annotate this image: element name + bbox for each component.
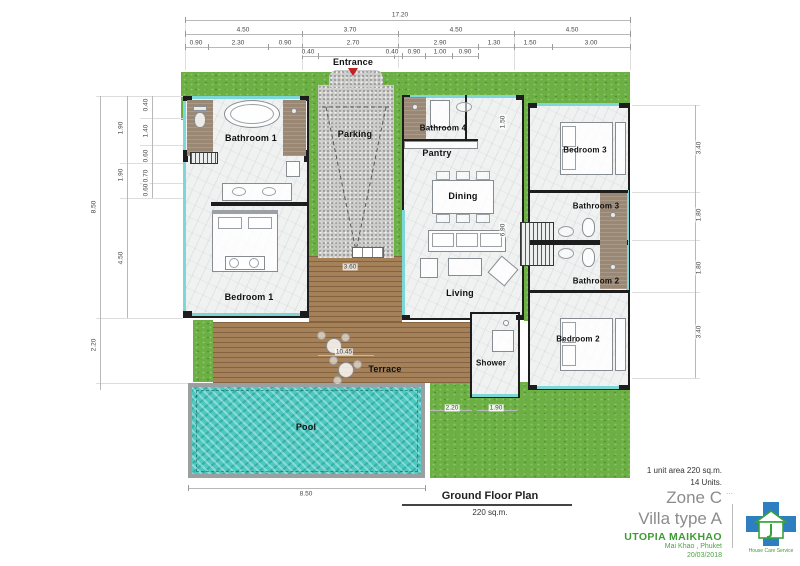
guide-line <box>96 318 183 319</box>
dim-left-inner: 0.60 <box>142 149 149 164</box>
room-label-terrace: Terrace <box>368 364 401 374</box>
glass-leftwing-top <box>186 96 306 99</box>
wall-seg <box>619 385 630 390</box>
dim-top2: 4.50 <box>565 26 580 33</box>
dim-tick <box>425 53 426 59</box>
guide-line <box>96 96 183 97</box>
guide-line <box>140 145 183 146</box>
bed1-headboard <box>212 210 278 214</box>
grass-sliver-left <box>309 72 318 262</box>
wall-seg <box>528 103 537 108</box>
villa-type-title: Villa type A <box>560 509 722 529</box>
plan-area: 220 sq.m. <box>410 508 570 517</box>
dim-line <box>127 96 128 318</box>
room-label-bathroom3: Bathroom 3 <box>573 202 619 211</box>
deck-chair <box>341 333 350 342</box>
dim-top3: 2.90 <box>433 39 448 46</box>
dim-tick <box>630 17 631 23</box>
zone-title: Zone C <box>560 488 722 508</box>
guide-line <box>632 192 700 193</box>
project-location: Mai Khao , Phuket <box>560 543 722 550</box>
wall-seg <box>619 103 630 108</box>
house-care-logo <box>746 502 796 546</box>
dim-line <box>100 96 101 390</box>
toilet-icon <box>582 248 595 267</box>
side-table <box>286 161 300 177</box>
room-label-bathroom1: Bathroom 1 <box>225 133 277 143</box>
guide-line <box>632 378 700 379</box>
room-label-parking: Parking <box>338 129 372 139</box>
dim-right: 1.80 <box>695 208 702 223</box>
parking-steps <box>352 247 384 258</box>
room-label-bedroom3: Bedroom 3 <box>563 146 607 155</box>
dim-left-inner: 0.70 <box>142 169 149 184</box>
dim-top2: 4.50 <box>449 26 464 33</box>
dim-top3: 0.90 <box>189 39 204 46</box>
project-date: 20/03/2018 <box>560 552 722 559</box>
dim-tick <box>630 31 631 37</box>
dim-right: 3.40 <box>695 141 702 156</box>
entrance-marker-icon <box>348 68 358 76</box>
dim-tick <box>318 53 319 59</box>
logo-caption: House Care Service <box>740 548 800 554</box>
room-label-shower: Shower <box>476 359 506 368</box>
dim-top4: 0.40 <box>385 48 400 55</box>
chair-icon <box>436 171 450 180</box>
dim-tick <box>552 44 553 50</box>
glass-shower-bottom <box>472 394 518 397</box>
dim-right: 1.80 <box>695 261 702 276</box>
room-label-bathroom2: Bathroom 2 <box>573 277 619 286</box>
grass-bottom-left <box>193 320 213 382</box>
armchair <box>420 258 438 278</box>
wall-seg <box>300 311 309 316</box>
dim-left-inner: 0.60 <box>142 183 149 198</box>
wall-seg <box>516 315 524 320</box>
dim-top3: 2.30 <box>231 39 246 46</box>
grass-sliver-mid <box>394 72 402 262</box>
dim-top4: 0.90 <box>407 48 422 55</box>
dim-top4: 1.00 <box>433 48 448 55</box>
bathtub-inner <box>230 104 274 124</box>
toilet-icon <box>194 112 206 128</box>
dim-tick <box>302 31 303 37</box>
pillow-icon <box>562 345 576 366</box>
wardrobe <box>615 122 626 175</box>
guide-line <box>120 198 183 199</box>
chair-icon <box>436 214 450 223</box>
dim-pool-width: 8.50 <box>299 490 314 497</box>
sink-icon <box>262 187 276 196</box>
shower-head-icon <box>610 212 616 218</box>
deck-chair <box>329 356 338 365</box>
room-label-bathroom4: Bathroom 4 <box>420 124 466 133</box>
toilet-icon <box>582 218 595 237</box>
dim-tick <box>398 31 399 37</box>
dim-inner-vertical: 6.90 <box>499 223 506 238</box>
glass-leftwing-bottom <box>186 313 306 316</box>
room-label-bedroom1: Bedroom 1 <box>225 292 274 302</box>
sink-icon <box>232 187 246 196</box>
sink-icon <box>456 102 472 112</box>
deck-chair <box>333 376 342 385</box>
dim-left-mid: 1.90 <box>117 121 124 136</box>
deck-chair <box>353 360 362 369</box>
dim-left-inner: 1.40 <box>142 124 149 139</box>
grass-bottom-right <box>430 382 630 478</box>
dim-top2: 3.70 <box>343 26 358 33</box>
guide-line <box>96 383 188 384</box>
shower-head-icon <box>412 104 418 110</box>
chair-icon <box>456 171 470 180</box>
wall-seg <box>516 95 524 100</box>
dim-tick <box>402 53 403 59</box>
fold-marks: ⋯ <box>726 492 733 498</box>
dim-left-outer: 2.20 <box>90 338 97 353</box>
titleblock-divider <box>732 504 733 548</box>
dim-top3: 3.00 <box>584 39 599 46</box>
dim-tick <box>188 485 189 491</box>
room-label-dining: Dining <box>448 191 477 201</box>
dim-overall-width: 17.20 <box>391 11 409 18</box>
dim-line <box>185 34 630 35</box>
dim-top3: 2.70 <box>346 39 361 46</box>
glass-rightwing-top <box>530 103 628 106</box>
pillow-icon <box>218 217 242 229</box>
wall-seg <box>528 385 537 390</box>
chair-icon <box>476 214 490 223</box>
closet-hatch <box>190 152 218 164</box>
dim-tick <box>185 44 186 50</box>
chair-icon <box>476 171 490 180</box>
room-label-living: Living <box>446 288 474 298</box>
dim-tick <box>185 31 186 37</box>
coffee-table <box>448 258 482 276</box>
wardrobe <box>615 318 626 371</box>
room-label-bedroom2: Bedroom 2 <box>556 335 600 344</box>
dim-left-inner: 0.40 <box>142 98 149 113</box>
dim-top4: 0.40 <box>301 48 316 55</box>
glass-center-left <box>402 210 405 318</box>
shower-room <box>470 312 520 398</box>
plan-title-underline <box>402 504 572 506</box>
dim-tick <box>630 44 631 50</box>
project-name: UTOPIA MAIKHAO <box>560 531 722 543</box>
dim-top2: 4.50 <box>236 26 251 33</box>
dim-line <box>185 20 630 21</box>
dim-top4: 0.90 <box>458 48 473 55</box>
dim-deck-width: 10.45 <box>335 348 353 355</box>
plan-title: Ground Floor Plan <box>410 490 570 502</box>
dim-tick <box>478 44 479 50</box>
sofa-cushion <box>432 233 454 247</box>
dim-tick <box>514 44 515 50</box>
guide-line <box>140 118 183 119</box>
wall-seg <box>402 315 410 320</box>
shower-head-icon <box>503 320 509 326</box>
dim-parking-width: 3.60 <box>343 263 358 270</box>
dim-tick <box>185 17 186 23</box>
dim-shower: 1.90 <box>489 404 504 411</box>
room-label-entrance: Entrance <box>333 57 373 67</box>
chair-icon <box>456 214 470 223</box>
dim-left-mid: 4.50 <box>117 251 124 266</box>
wall-bedroom1-top <box>211 202 309 206</box>
dim-right: 3.40 <box>695 325 702 340</box>
dim-inner-vertical: 1.50 <box>499 115 506 130</box>
shower-head-icon <box>610 264 616 270</box>
dim-tick <box>268 44 269 50</box>
toilet-icon <box>193 106 207 111</box>
bench-cushion <box>229 258 239 268</box>
dim-line <box>152 96 153 198</box>
deck-table <box>338 362 354 378</box>
dim-tick <box>208 44 209 50</box>
dim-tick <box>452 53 453 59</box>
wall-baths-bottom <box>530 290 628 293</box>
unit-area-text: 1 unit area 220 sq.m. <box>560 466 722 475</box>
room-label-pool: Pool <box>296 422 316 432</box>
dim-tick <box>514 31 515 37</box>
dim-top3: 0.90 <box>278 39 293 46</box>
dim-tick <box>478 53 479 59</box>
guide-line <box>514 35 515 70</box>
glass-rightwing-bottom <box>530 386 626 389</box>
pillow-icon <box>248 217 272 229</box>
dim-top3: 1.50 <box>523 39 538 46</box>
dim-line <box>188 488 425 489</box>
shower-tray <box>492 330 514 352</box>
guide-line <box>632 105 700 106</box>
guide-line <box>632 240 700 241</box>
room-label-pantry: Pantry <box>422 148 451 158</box>
pillow-icon <box>562 126 576 147</box>
sink-icon <box>558 226 574 237</box>
dim-left-outer: 8.50 <box>90 200 97 215</box>
deck-chair <box>317 331 326 340</box>
shower-head-icon <box>291 108 297 114</box>
dim-left-mid: 1.90 <box>117 168 124 183</box>
sofa-cushion <box>456 233 478 247</box>
guide-line <box>632 292 700 293</box>
wall-seg <box>183 311 192 316</box>
bench-cushion <box>249 258 259 268</box>
parking-guide-lines <box>318 85 394 258</box>
dim-shower: 2.20 <box>445 404 460 411</box>
sink-icon <box>558 248 574 259</box>
floor-plan-canvas: Bathroom 1 Bedroom 1 Entrance Parking Ba… <box>0 0 800 566</box>
units-text: 14 Units. <box>560 478 722 487</box>
dim-top3: 1.30 <box>487 39 502 46</box>
dim-tick <box>425 485 426 491</box>
glass-leftwing-left <box>183 98 186 316</box>
